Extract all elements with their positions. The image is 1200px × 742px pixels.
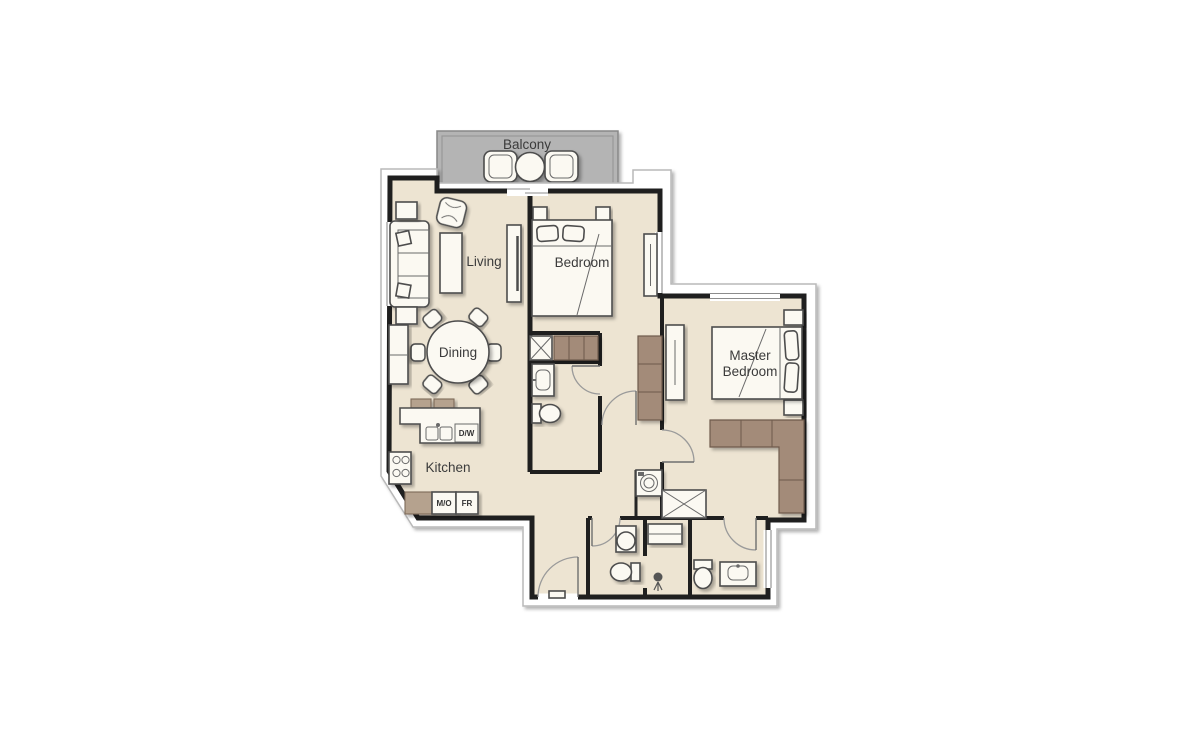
toilet-icon xyxy=(694,560,712,589)
dresser xyxy=(666,325,684,400)
toilet-icon xyxy=(532,404,561,423)
dishwasher-label: D/W xyxy=(459,429,475,438)
nightstand xyxy=(533,207,547,221)
living-label: Living xyxy=(466,254,501,269)
entrance-threshold xyxy=(549,591,565,598)
side-table xyxy=(396,307,417,324)
balcony-table-icon xyxy=(516,153,545,182)
pillow xyxy=(562,225,584,241)
stove-icon xyxy=(389,452,411,484)
bedroom-label: Bedroom xyxy=(555,255,610,270)
balcony: Balcony xyxy=(437,131,618,191)
bedroom-wardrobe xyxy=(638,336,662,420)
microwave-oven-box: M/O xyxy=(432,492,456,514)
sofa-pillow xyxy=(396,283,411,298)
washing-machine-icon xyxy=(636,470,662,496)
floor-plan-canvas: Balcony xyxy=(0,0,1200,742)
microwave-oven-label: M/O xyxy=(436,499,451,508)
master-bedroom-label-line2: Bedroom xyxy=(723,364,778,379)
sideboard xyxy=(389,325,408,384)
side-table xyxy=(396,202,417,219)
kitchen-counter xyxy=(405,492,432,514)
tv-console xyxy=(507,225,521,302)
master-bathroom xyxy=(694,560,756,589)
bar-stool xyxy=(411,399,431,408)
pillow xyxy=(784,331,799,361)
master-bath-window xyxy=(764,530,773,588)
dining-chair xyxy=(411,344,425,361)
fridge-label: FR xyxy=(462,499,473,508)
pillow xyxy=(784,363,799,393)
vanity-sink-icon xyxy=(720,562,756,586)
nightstand xyxy=(784,310,803,325)
sofa xyxy=(390,221,429,307)
bar-stool xyxy=(434,399,454,408)
sofa-pillow xyxy=(396,231,411,246)
fridge-box: FR xyxy=(456,492,478,514)
master-bed xyxy=(712,327,802,399)
washbasin-shelf xyxy=(648,524,682,544)
balcony-furniture xyxy=(484,151,578,182)
shaft-icon xyxy=(530,336,552,360)
toilet-icon xyxy=(611,563,641,581)
sink-icon xyxy=(532,364,554,396)
armchair xyxy=(435,196,468,229)
shaft-icon xyxy=(662,490,706,518)
nightstand xyxy=(596,207,610,221)
nightstand xyxy=(784,400,803,415)
pedestal-sink-icon xyxy=(616,526,636,552)
kitchen-label: Kitchen xyxy=(425,460,470,475)
coffee-table xyxy=(440,233,462,293)
hall-closet xyxy=(554,336,598,360)
master-bedroom-label-line1: Master xyxy=(729,348,771,363)
floor-plan-svg: Balcony xyxy=(0,0,1200,742)
balcony-label: Balcony xyxy=(503,137,551,152)
master-bedroom-window xyxy=(710,291,780,301)
balcony-sliding-door xyxy=(507,186,548,196)
pillow xyxy=(537,225,559,241)
dining-label: Dining xyxy=(439,345,477,360)
